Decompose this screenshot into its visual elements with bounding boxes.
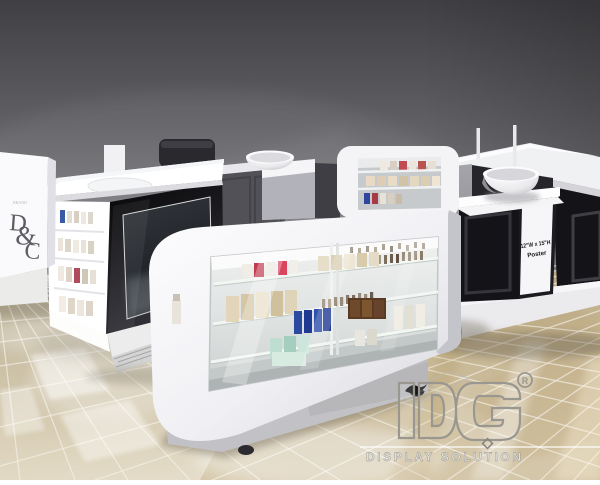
- svg-text:DISPLAY SOLUTION: DISPLAY SOLUTION: [366, 450, 524, 464]
- svg-text:C: C: [24, 238, 42, 265]
- svg-text:R: R: [522, 376, 529, 386]
- svg-text:BRAND: BRAND: [13, 200, 27, 205]
